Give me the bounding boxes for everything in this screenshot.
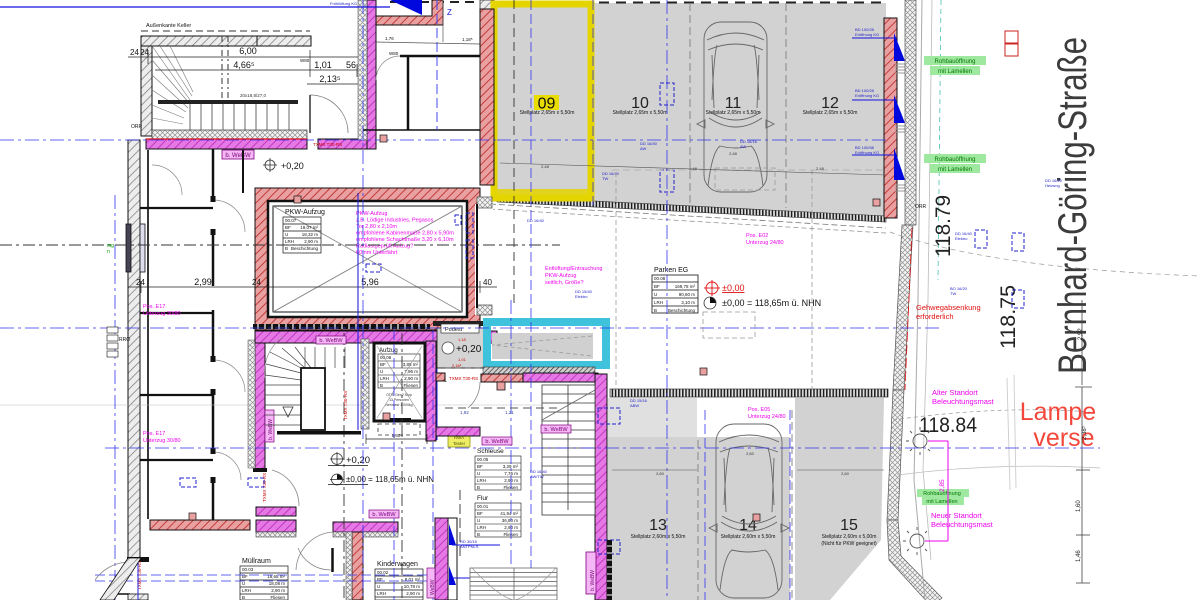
svg-text:U: U — [654, 292, 657, 297]
svg-text:118.84: 118.84 — [919, 414, 977, 437]
svg-text:U: U — [242, 581, 245, 586]
svg-text:1,46: 1,46 — [1076, 550, 1082, 562]
svg-text:ORR: ORR — [131, 124, 143, 130]
svg-text:seitlich, Größe?: seitlich, Größe? — [545, 280, 584, 286]
svg-text:00.02: 00.02 — [377, 570, 389, 575]
svg-text:LRH: LRH — [377, 591, 386, 596]
svg-text:Eröffnung KG: Eröffnung KG — [855, 93, 879, 98]
svg-text:56: 56 — [346, 60, 356, 70]
svg-text:+0,20: +0,20 — [346, 455, 370, 466]
svg-text:±0,00: ±0,00 — [722, 283, 744, 293]
svg-text:B: B — [285, 246, 288, 251]
svg-text:Stellplatz 2,60m x 5,00m: Stellplatz 2,60m x 5,00m — [822, 534, 877, 540]
svg-text:Eröffnung KG: Eröffnung KG — [855, 32, 879, 37]
svg-text:Eröffnung KG: Eröffnung KG — [855, 150, 879, 155]
svg-text:1,18: 1,18 — [458, 337, 467, 342]
svg-text:118.79: 118.79 — [932, 195, 955, 257]
svg-text:BF: BF — [477, 464, 483, 469]
svg-text:00.03: 00.03 — [242, 567, 254, 572]
svg-text:2,60: 2,60 — [746, 451, 755, 456]
svg-text:00.08: 00.08 — [654, 276, 666, 281]
svg-text:LRH: LRH — [242, 588, 251, 593]
svg-text:1,01: 1,01 — [458, 357, 467, 362]
svg-text:TXMX T30-RS: TXMX T30-RS — [313, 142, 342, 147]
svg-text:1,40: 1,40 — [392, 433, 401, 438]
svg-text:n: n — [107, 249, 110, 255]
svg-text:Kinderwagen: Kinderwagen — [377, 561, 418, 568]
svg-text:B: B — [242, 595, 245, 600]
svg-text:40: 40 — [483, 278, 492, 287]
svg-text:Stellplatz 2,60m x 5,50m: Stellplatz 2,60m x 5,50m — [721, 534, 776, 540]
svg-text:LRH: LRH — [477, 478, 486, 483]
svg-text:Beleuchtungsmast: Beleuchtungsmast — [932, 397, 995, 406]
svg-text:Flur: Flur — [477, 495, 489, 502]
svg-text:BF: BF — [285, 225, 291, 230]
svg-text:10,78 m: 10,78 m — [404, 584, 421, 589]
svg-text:WeBW: WeBW — [430, 579, 436, 595]
svg-text:mit Lamellen: mit Lamellen — [938, 69, 972, 75]
svg-text:60mm Unterfährt: 60mm Unterfährt — [356, 250, 398, 256]
svg-text:2,38⁵: 2,38⁵ — [1081, 425, 1088, 440]
svg-text:U: U — [380, 369, 383, 374]
svg-text:LRH: LRH — [477, 525, 486, 530]
svg-text:Radlastgeprüft Aufzug?: Radlastgeprüft Aufzug? — [356, 244, 413, 250]
svg-text:b. WeBW: b. WeBW — [485, 439, 509, 445]
svg-text:Tor 2,80 x 2,10m: Tor 2,80 x 2,10m — [356, 224, 397, 230]
svg-text:Gehwegabsenkung: Gehwegabsenkung — [916, 303, 981, 312]
svg-text:2,85: 2,85 — [939, 479, 946, 492]
svg-text:19,07 m²: 19,07 m² — [300, 225, 318, 230]
svg-text:1,01: 1,01 — [314, 60, 332, 70]
svg-text:20x18,8/27,0: 20x18,8/27,0 — [240, 93, 267, 98]
svg-text:+0,20: +0,20 — [456, 344, 482, 355]
svg-text:b. WeBW: b. WeBW — [225, 153, 251, 159]
svg-text:TW: TW — [602, 176, 608, 181]
svg-text:2,99: 2,99 — [194, 277, 212, 287]
svg-text:Lampe: Lampe — [1020, 398, 1096, 426]
svg-text:B: B — [477, 532, 480, 537]
svg-text:2,48: 2,48 — [729, 151, 738, 156]
svg-text:LRH: LRH — [654, 300, 663, 305]
svg-text:BF: BF — [380, 362, 386, 367]
svg-text:Stellplatz 2,65m x 5,50m: Stellplatz 2,65m x 5,50m — [613, 110, 668, 116]
svg-text:13: 13 — [649, 517, 667, 534]
svg-text:2,48: 2,48 — [816, 166, 825, 171]
svg-text:90,60 m: 90,60 m — [679, 292, 696, 297]
svg-text:18,08 m: 18,08 m — [269, 581, 286, 586]
svg-text:169,78 m²: 169,78 m² — [675, 284, 696, 289]
svg-text:U: U — [477, 471, 480, 476]
svg-text:00.06: 00.06 — [380, 355, 392, 360]
svg-text:00.07: 00.07 — [285, 218, 297, 223]
svg-text:2,60: 2,60 — [841, 471, 850, 476]
svg-text:+0,20: +0,20 — [281, 161, 304, 171]
svg-text:B: B — [654, 308, 657, 313]
svg-text:Stellplatz 2,65m x 5,50m: Stellplatz 2,65m x 5,50m — [803, 110, 858, 116]
svg-text:Außenkante Keller: Außenkante Keller — [146, 23, 191, 29]
svg-text:6,00: 6,00 — [239, 46, 257, 56]
svg-text:b. WeBW: b. WeBW — [372, 512, 396, 518]
svg-text:00.05: 00.05 — [477, 457, 489, 462]
svg-text:24: 24 — [130, 48, 139, 57]
svg-text:PKW-Aufzug: PKW-Aufzug — [285, 209, 325, 216]
svg-text:ABW: ABW — [630, 403, 639, 408]
svg-text:Parken EG: Parken EG — [654, 267, 688, 274]
svg-text:DD 16/40: DD 16/40 — [527, 218, 545, 223]
svg-text:2,18⁵: 2,18⁵ — [452, 363, 462, 368]
svg-text:Stellplatz 2,65m x 5,50m: Stellplatz 2,65m x 5,50m — [520, 110, 575, 116]
svg-text:Müllraum: Müllraum — [242, 558, 271, 565]
svg-text:1,18⁵: 1,18⁵ — [462, 37, 473, 42]
svg-text:empfohlene Kabinenmaße 2,80 x: empfohlene Kabinenmaße 2,80 x 5,90m — [356, 231, 454, 237]
svg-text:Neuer Standort: Neuer Standort — [931, 511, 983, 520]
svg-text:(Nicht für PKW geeignet): (Nicht für PKW geeignet) — [821, 541, 877, 547]
svg-text:empfohlene Schachtmaße 3,20 x: empfohlene Schachtmaße 3,20 x 6,10m — [356, 237, 454, 243]
svg-text:Nennlast 1.000kg: Nennlast 1.000kg — [385, 403, 412, 407]
svg-text:BF: BF — [654, 284, 660, 289]
svg-text:TW: TW — [950, 291, 956, 296]
svg-text:Unterzug 24/80: Unterzug 24/80 — [748, 414, 786, 420]
svg-text:Schleuse: Schleuse — [477, 448, 504, 455]
svg-text:Stellplatz 2,60m x 5,50m: Stellplatz 2,60m x 5,50m — [631, 534, 686, 540]
svg-text:Rohbauöffnung: Rohbauöffnung — [935, 59, 976, 65]
svg-text:Unterzug 30/80: Unterzug 30/80 — [143, 311, 181, 317]
svg-text:Unterzug 24/80: Unterzug 24/80 — [746, 240, 784, 246]
svg-text:15: 15 — [840, 517, 858, 534]
svg-text:TXMX T30-RS: TXMX T30-RS — [449, 376, 478, 381]
svg-text:±0,00 = 118,65m ü. NHN: ±0,00 = 118,65m ü. NHN — [722, 298, 821, 308]
svg-text:2,13⁵: 2,13⁵ — [319, 74, 341, 84]
svg-text:41,94 m²: 41,94 m² — [500, 511, 518, 516]
svg-text:Alter Standort: Alter Standort — [932, 388, 979, 397]
svg-text:AW/TW: AW/TW — [530, 474, 544, 479]
svg-text:b. WeBW: b. WeBW — [319, 338, 343, 344]
svg-text:PKW-Aufzug: PKW-Aufzug — [356, 211, 387, 217]
svg-text:4,66⁵: 4,66⁵ — [233, 60, 255, 70]
svg-text:mit Lamellen: mit Lamellen — [926, 499, 957, 505]
svg-text:Entlüftung/Entrauchung: Entlüftung/Entrauchung — [545, 266, 603, 272]
svg-text:Frühlüftung KG: Frühlüftung KG — [330, 1, 357, 6]
svg-text:Rohbauöffnung: Rohbauöffnung — [935, 157, 976, 163]
svg-text:2,90 m: 2,90 m — [406, 591, 420, 596]
svg-text:13 Personen: 13 Personen — [389, 398, 409, 402]
svg-text:z.B. Lödige Industries, Pegaso: z.B. Lödige Industries, Pegasos — [356, 218, 434, 224]
svg-text:Beleuchtungsmast: Beleuchtungsmast — [931, 520, 994, 529]
svg-text:1,76: 1,76 — [385, 36, 394, 41]
svg-text:Heizung: Heizung — [1045, 183, 1060, 188]
svg-text:U: U — [477, 518, 480, 523]
svg-text:erforderlich: erforderlich — [916, 312, 954, 321]
svg-text:Pos. E05: Pos. E05 — [748, 407, 770, 413]
svg-text:Taster: Taster — [453, 441, 466, 446]
svg-text:W80: W80 — [300, 58, 310, 63]
svg-text:BF: BF — [477, 511, 483, 516]
svg-text:TXMX T30-RS: TXMX T30-RS — [343, 391, 348, 420]
svg-text:Pos. E17: Pos. E17 — [143, 431, 165, 437]
svg-text:24: 24 — [136, 278, 145, 287]
svg-text:B: B — [477, 485, 480, 490]
svg-text:B: B — [380, 383, 383, 388]
svg-text:U: U — [285, 232, 288, 237]
svg-text:RRO: RRO — [119, 337, 130, 343]
svg-text:b. WeBW: b. WeBW — [590, 570, 596, 591]
svg-text:3,10 m: 3,10 m — [681, 300, 695, 305]
svg-text:Bernhard-Göring-Straße: Bernhard-Göring-Straße — [1051, 37, 1095, 374]
svg-text:2,48: 2,48 — [689, 166, 698, 171]
svg-text:Stellplatz 2,65m x 5,50m: Stellplatz 2,65m x 5,50m — [706, 110, 761, 116]
svg-text:36,80 m: 36,80 m — [502, 518, 519, 523]
svg-text:LRH: LRH — [380, 376, 389, 381]
svg-text:118.75: 118.75 — [997, 285, 1020, 349]
svg-text:Pos. E17: Pos. E17 — [143, 304, 165, 310]
svg-text:Z: Z — [447, 8, 452, 17]
svg-text:2,90 m: 2,90 m — [271, 588, 285, 593]
svg-text:1,60: 1,60 — [1076, 500, 1082, 512]
svg-text:AW: AW — [740, 144, 747, 149]
svg-text:Fliesen: Fliesen — [403, 383, 418, 388]
svg-text:Pos. E02: Pos. E02 — [746, 233, 768, 239]
svg-text:2,90 m: 2,90 m — [404, 376, 418, 381]
svg-text:Fliesen: Fliesen — [270, 595, 285, 600]
svg-text:ANTPNLS: ANTPNLS — [460, 544, 479, 549]
svg-text:U: U — [377, 584, 380, 589]
svg-text:Elektro: Elektro — [955, 236, 968, 241]
svg-text:b. WeBW: b. WeBW — [544, 427, 568, 433]
svg-text:Beschichtung: Beschichtung — [291, 246, 319, 251]
svg-text:b. WeBW: b. WeBW — [268, 419, 274, 440]
svg-text:2,92: 2,92 — [1078, 328, 1084, 340]
svg-text:mit Lamellen: mit Lamellen — [938, 167, 972, 173]
svg-text:5,96: 5,96 — [361, 277, 379, 287]
svg-text:PKW-Aufzug: PKW-Aufzug — [545, 273, 576, 279]
svg-text:18,32 m: 18,32 m — [302, 232, 319, 237]
svg-text:Unterzug 30/80: Unterzug 30/80 — [143, 438, 181, 444]
svg-text:Elektro: Elektro — [575, 294, 588, 299]
svg-text:AW: AW — [640, 146, 647, 151]
svg-text:2,60: 2,60 — [656, 471, 665, 476]
svg-text:1,21: 1,21 — [505, 410, 514, 415]
svg-text:Beschichtung: Beschichtung — [668, 308, 696, 313]
svg-text:ORR: ORR — [915, 204, 927, 210]
svg-text:LRH: LRH — [285, 239, 294, 244]
svg-text:00.01: 00.01 — [477, 504, 489, 509]
svg-text:1,92: 1,92 — [460, 410, 469, 415]
svg-text:24: 24 — [252, 278, 261, 287]
svg-text:±0,00 = 118,65m ü. NHN: ±0,00 = 118,65m ü. NHN — [346, 475, 434, 484]
svg-text:2,90 m: 2,90 m — [304, 239, 318, 244]
svg-text:24: 24 — [140, 48, 149, 57]
svg-text:W80: W80 — [389, 51, 399, 56]
